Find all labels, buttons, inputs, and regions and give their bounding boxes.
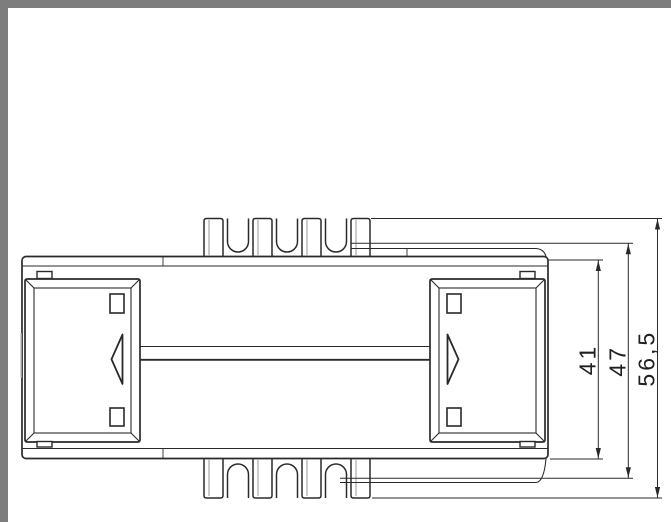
latch-tab-bottom-right — [520, 442, 535, 448]
drawing-page: 41 47 56,5 — [0, 0, 671, 522]
dim-label-56-5: 56,5 — [634, 330, 660, 387]
right-block-window-top — [447, 294, 461, 313]
right-connector-block — [430, 279, 545, 442]
dim-label-41: 41 — [575, 344, 601, 376]
left-block-window-bottom — [110, 408, 124, 426]
left-connector-block — [25, 279, 140, 442]
latch-tab-bottom-left — [37, 442, 52, 448]
left-block-window-top — [110, 294, 124, 313]
right-block-window-bottom — [447, 408, 461, 426]
latch-tab-top-right — [520, 272, 535, 279]
frame-top-edge — [0, 0, 671, 8]
frame-left-edge — [0, 0, 8, 522]
dim-label-47: 47 — [605, 345, 631, 377]
device-drawing — [21, 219, 548, 499]
technical-drawing-canvas: 41 47 56,5 — [0, 0, 671, 522]
latch-tab-top-left — [37, 272, 52, 279]
